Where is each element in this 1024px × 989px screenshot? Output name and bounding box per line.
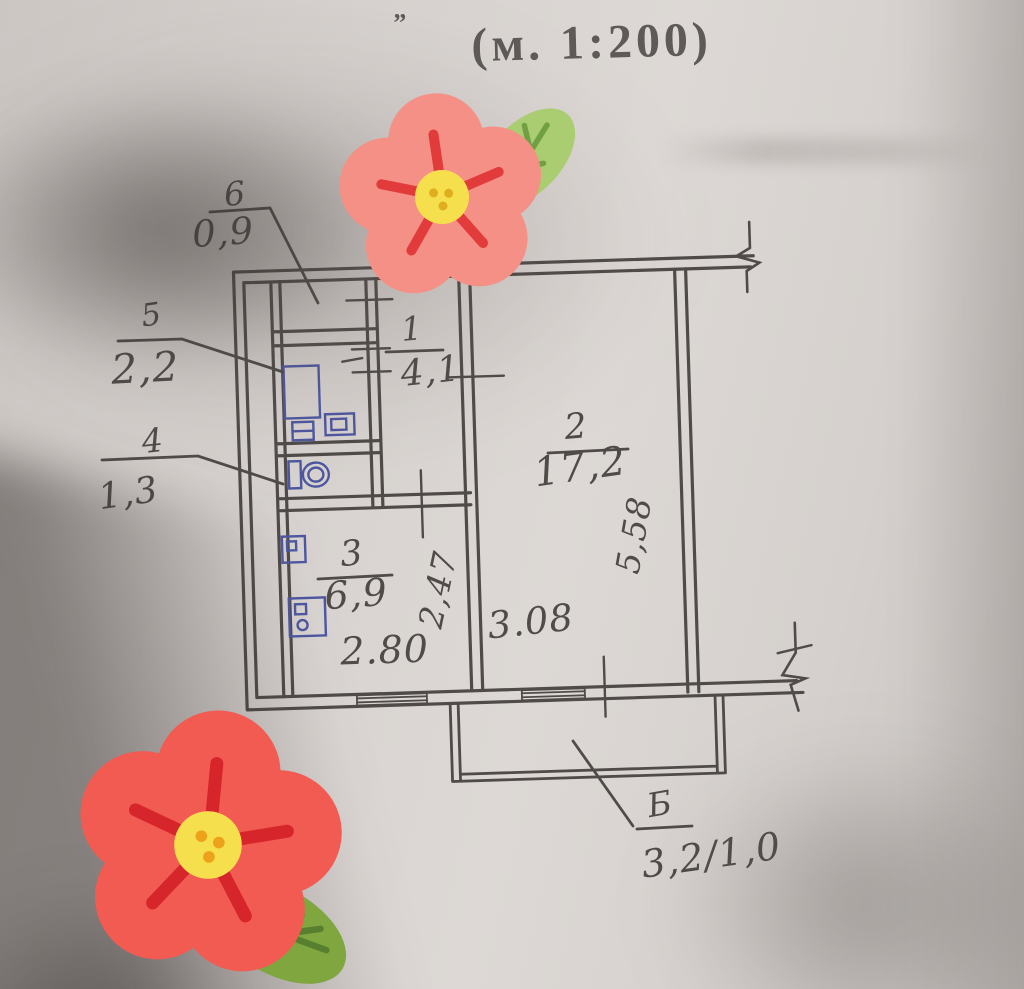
room-5-number: 5 <box>139 296 165 335</box>
room-1-area: 4,1 <box>398 348 463 395</box>
scale-note: (м. 1:200) <box>471 13 713 72</box>
room-4-number: 4 <box>139 420 166 461</box>
dim-living-depth: 5,58 <box>608 493 660 576</box>
room-2-number: 2 <box>562 406 590 448</box>
quote-marks: „ <box>394 0 411 24</box>
dim-living-width: 3.08 <box>485 596 575 648</box>
room-6-number: 6 <box>222 173 247 214</box>
balcony-walls <box>450 695 725 782</box>
label-leaders <box>102 208 692 829</box>
window-hatch-living <box>522 688 585 700</box>
room-3-number: 3 <box>338 533 365 575</box>
floor-plan-drawing: (м. 1:200) „ <box>0 0 1024 989</box>
balcony-number: Б <box>643 782 676 825</box>
dim-kitchen-width: 2.80 <box>339 626 430 673</box>
floorplan-photo: (м. 1:200) „ <box>0 0 1024 989</box>
room-6-area: 0,9 <box>191 209 256 256</box>
printed-title: (м. 1:200) „ <box>394 0 713 72</box>
washing-machine <box>325 413 355 435</box>
toilet <box>288 460 329 488</box>
room-5-area: 2,2 <box>109 342 181 394</box>
window-hatch-kitchen <box>357 693 427 705</box>
plan-labels: 6 0,9 5 2,2 4 1,3 1 4,1 2 17,2 3 6,9 Б 3… <box>96 173 784 887</box>
living-right-wall <box>675 269 699 692</box>
room-3-area: 6,9 <box>323 570 389 618</box>
balcony-area: 3,2/1,0 <box>638 824 783 887</box>
dim-kitchen-depth: 2,47 <box>410 548 464 633</box>
plan-walls <box>232 220 815 788</box>
bathtub <box>283 365 320 418</box>
kitchen-stove <box>289 597 326 636</box>
kitchen-sink <box>282 536 306 563</box>
room-4-area: 1,3 <box>96 469 161 518</box>
sink <box>292 422 314 441</box>
room-2-area: 17,2 <box>531 438 630 497</box>
room-1-number: 1 <box>399 308 424 349</box>
break-mark-bottom-right <box>781 622 807 711</box>
